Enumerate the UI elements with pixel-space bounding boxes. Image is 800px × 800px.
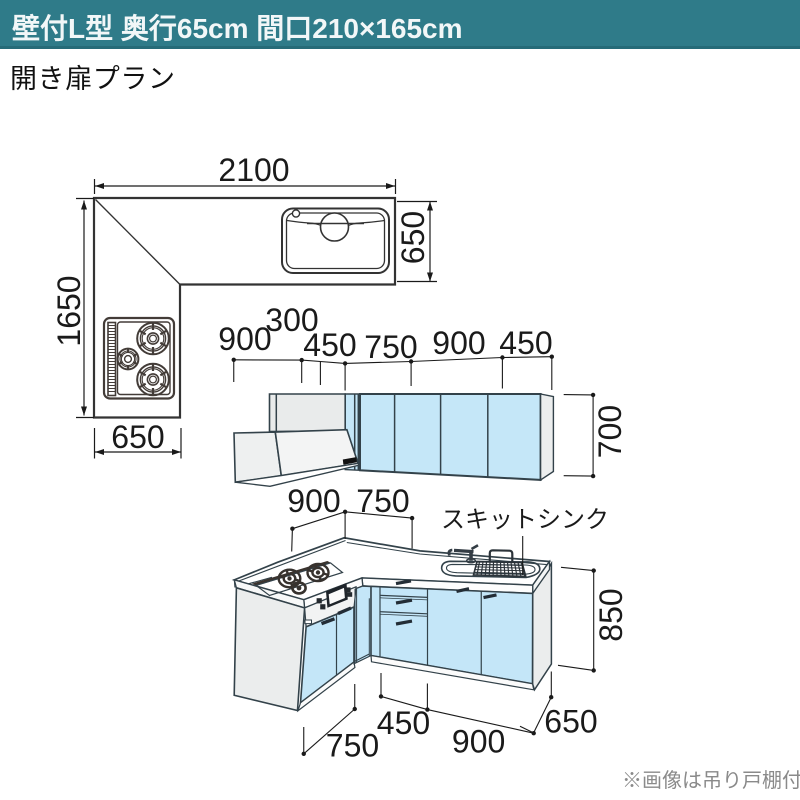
svg-text:750: 750: [356, 483, 409, 519]
svg-text:1650: 1650: [51, 275, 87, 346]
svg-text:900: 900: [452, 724, 505, 760]
svg-text:スキットシンク: スキットシンク: [441, 507, 609, 534]
svg-text:450: 450: [377, 705, 430, 741]
svg-text:450: 450: [499, 325, 552, 361]
svg-text:750: 750: [326, 728, 379, 764]
svg-text:650: 650: [395, 211, 431, 264]
svg-text:900: 900: [432, 325, 485, 361]
svg-text:850: 850: [593, 588, 629, 641]
svg-text:900: 900: [218, 321, 271, 357]
svg-text:650: 650: [544, 704, 597, 740]
svg-text:900: 900: [287, 483, 340, 519]
svg-text:2100: 2100: [218, 152, 289, 188]
svg-text:450: 450: [303, 327, 356, 363]
svg-text:700: 700: [592, 405, 628, 458]
svg-text:650: 650: [111, 419, 164, 455]
svg-text:750: 750: [364, 329, 417, 365]
